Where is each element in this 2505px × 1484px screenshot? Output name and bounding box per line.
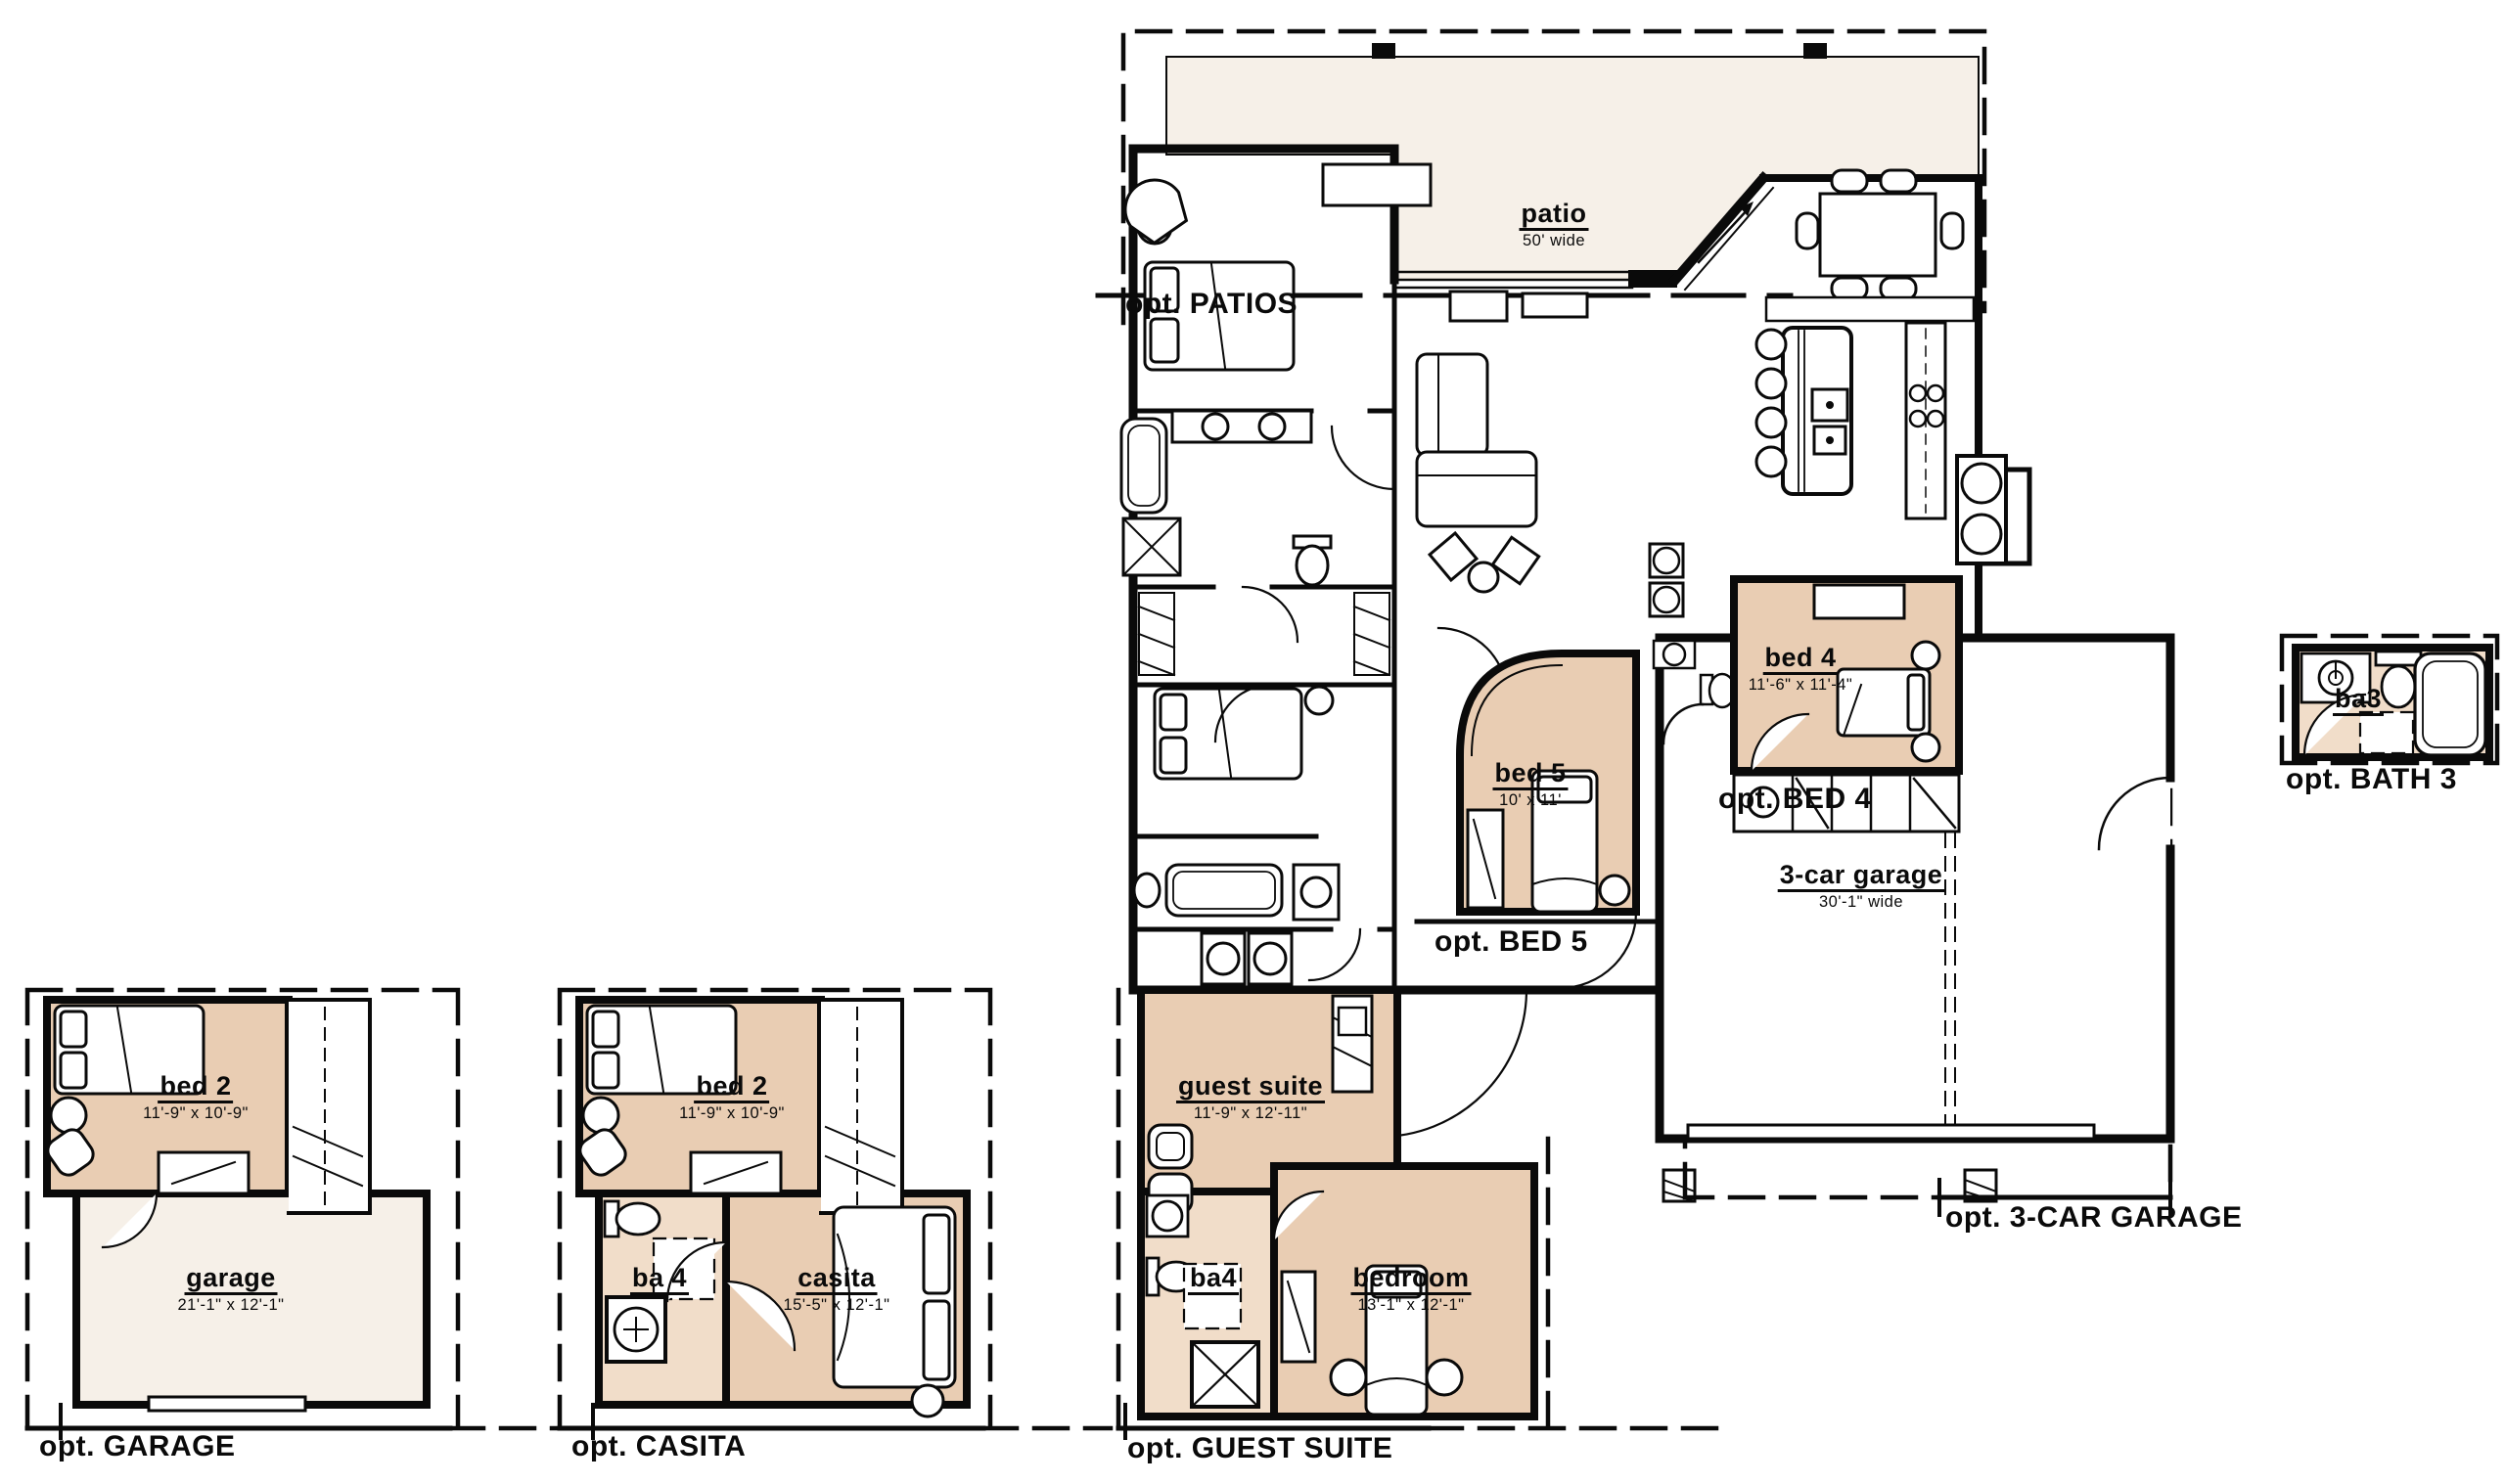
- bed4-label: bed 4 11'-6" x 11'-4": [1749, 644, 1853, 695]
- guest-suite-block: [1141, 990, 1534, 1417]
- casita-inset-bed2-label: bed 2 11'-9" x 10'-9": [679, 1072, 785, 1123]
- patio-name: patio: [1520, 200, 1589, 231]
- opt-bath3-label: opt. BATH 3: [2286, 763, 2457, 796]
- garage-inset-garage-label: garage 21'-1" x 12'-1": [178, 1264, 285, 1315]
- opt-casita-label: opt. CASITA: [571, 1430, 746, 1463]
- great-room: [1417, 292, 1587, 592]
- opt-3car-garage-label: opt. 3-CAR GARAGE: [1945, 1201, 2243, 1235]
- guest-suite-label: guest suite 11'-9" x 12'-11": [1176, 1072, 1325, 1123]
- opt-bed5-label: opt. BED 5: [1435, 925, 1588, 959]
- inset-opt-garage: [43, 1000, 427, 1411]
- opt-bed4-label: opt. BED 4: [1718, 783, 1872, 816]
- casita-inset-ba4-label: ba 4: [630, 1264, 689, 1295]
- garage3-label: 3-car garage 30'-1" wide: [1778, 861, 1945, 912]
- patio-label: patio 50' wide: [1520, 200, 1589, 250]
- bed5-label: bed 5 10' x 11': [1492, 759, 1568, 810]
- ba3-label: ba3: [2333, 685, 2384, 716]
- opt-guest-suite-label: opt. GUEST SUITE: [1127, 1432, 1392, 1465]
- floor-plan-page: patio 50' wide opt. PATIOS bed 4 11'-6" …: [0, 0, 2505, 1484]
- guest-bedroom-label: bedroom 13'-1" x 12'-1": [1350, 1264, 1471, 1315]
- patio-dims: 50' wide: [1520, 233, 1589, 249]
- opt-garage-label: opt. GARAGE: [39, 1430, 236, 1463]
- guest-ba4-label: ba4: [1188, 1264, 1239, 1295]
- inset-opt-bath3: [2296, 648, 2489, 757]
- floor-plan-drawing: [0, 0, 2505, 1484]
- garage-inset-bed2-label: bed 2 11'-9" x 10'-9": [143, 1072, 249, 1123]
- opt-patios-label: opt. PATIOS: [1125, 288, 1298, 321]
- inset-opt-casita: [575, 1000, 967, 1417]
- casita-inset-casita-label: casita 15'-5" x 12'-1": [784, 1264, 890, 1315]
